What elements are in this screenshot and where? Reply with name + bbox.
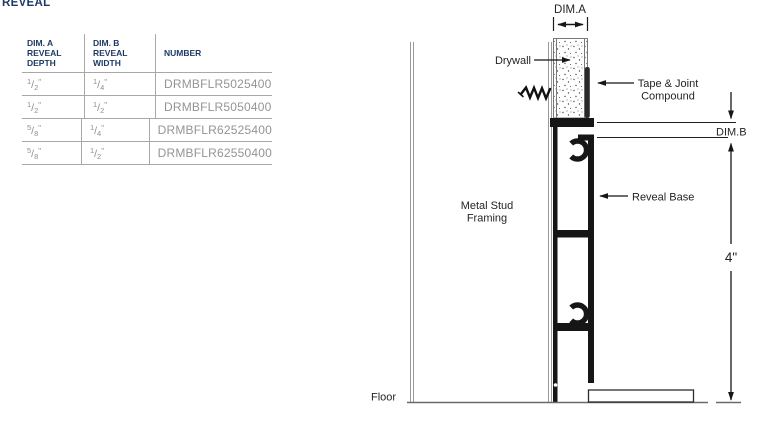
metal-stud-framing-label: Metal Stud Framing	[461, 200, 514, 225]
svg-text:Framing: Framing	[467, 213, 507, 225]
tape-joint-callout: Tape & Joint Compound	[598, 78, 698, 103]
profile-back-leg	[553, 127, 558, 403]
screw-icon	[519, 88, 551, 99]
reveal-base-callout: Reveal Base	[600, 192, 694, 204]
tape-joint-compound-bead	[585, 67, 590, 118]
reveal-base-profile	[550, 118, 594, 403]
tape-joint-label-line2: Compound	[641, 91, 695, 103]
base-plate	[589, 390, 694, 402]
metal-stud-near-flange	[549, 42, 552, 403]
drywall-section	[554, 39, 588, 119]
profile-snap-clip-lower	[571, 305, 586, 323]
svg-text:Metal Stud: Metal Stud	[461, 200, 514, 212]
metal-stud-far-flange	[411, 42, 414, 403]
reveal-base-label: Reveal Base	[632, 192, 694, 204]
profile-web-upper	[557, 230, 588, 238]
drywall-label: Drywall	[495, 55, 531, 67]
height-label: 4"	[725, 250, 738, 265]
dim-a-dimension: DIM.A	[554, 4, 588, 31]
tape-joint-label-line1: Tape & Joint	[638, 78, 699, 90]
profile-front-face	[588, 135, 594, 384]
profile-fastener-hole	[554, 383, 558, 387]
floor-label: Floor	[371, 392, 396, 404]
dim-a-label: DIM.A	[554, 4, 586, 16]
profile-top-flange	[550, 118, 594, 127]
dim-b-label: DIM.B	[716, 127, 747, 139]
spec-sheet-page: REVEAL DIM. A REVEAL DEPTH DIM. B REVEAL…	[0, 0, 757, 430]
reveal-section-diagram: DIM.A Drywall Tape & Joint Compound	[0, 0, 757, 430]
profile-snap-clip-upper	[571, 141, 586, 159]
height-dimension: 4"	[725, 144, 738, 401]
